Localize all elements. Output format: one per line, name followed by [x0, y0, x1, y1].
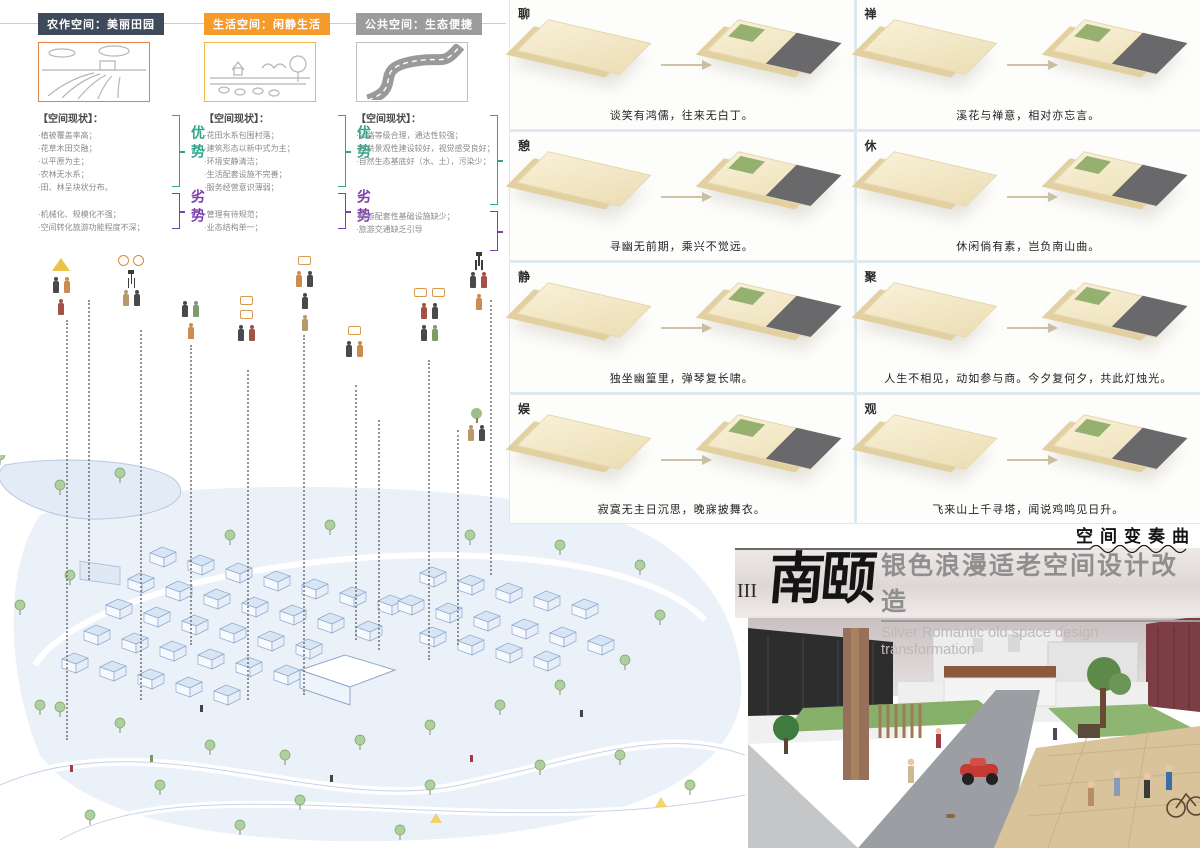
list-item: ·空间转化旅游功能程度不深；: [38, 221, 170, 234]
person-figure-icon: [432, 307, 438, 319]
photographer-icon: [470, 252, 487, 310]
winding-road-sketch: [356, 42, 468, 102]
disadvantage-list: ·机械化、规模化不强； ·空间转化旅游功能程度不深；: [38, 208, 170, 234]
disadvantage-list: ·管理有待规范； ·业态结构单一；: [204, 208, 336, 234]
building-slab: [863, 151, 998, 207]
before-after-models: [857, 395, 1200, 489]
before-after-models: [857, 0, 1200, 94]
village-sketch-drawing: [206, 44, 314, 100]
transform-cell-chat: 聊 谈笑有鸿儒，往来无白丁。: [510, 0, 854, 129]
camera-tripod-icon: [126, 270, 136, 284]
person-figure-icon: [134, 294, 140, 306]
building-slab: [863, 19, 998, 75]
model-after: [713, 411, 841, 489]
project-titles: 银色浪漫适老空间设计改造 Silver Romantic old space d…: [881, 546, 1200, 658]
tent-shape: [52, 258, 70, 271]
building-slab: [516, 282, 651, 338]
building-slab: [1053, 151, 1188, 207]
picnic-food-icon: [238, 296, 255, 341]
badge-public-space: 公共空间：生态便捷: [356, 13, 482, 35]
analysis-column-farm: 农作空间：美丽田园 【空间现状】： ·植被覆盖率高； ·花草木田交融； ·以平原…: [38, 13, 198, 234]
building-slab: [516, 414, 651, 470]
cell-caption: 休闲倘有素，岂负南山曲。: [857, 238, 1200, 254]
person-figure-icon: [238, 329, 244, 341]
badge-farm-space: 农作空间：美丽田园: [38, 13, 164, 35]
person-figure-icon: [357, 345, 363, 357]
model-after: [1059, 411, 1187, 489]
person-figure-icon: [307, 275, 313, 287]
connector-dotted-line: [66, 320, 68, 740]
advantage-bracket: [338, 115, 346, 187]
list-item: ·公共景观性建设较好，视觉感受良好；: [356, 142, 488, 155]
model-before: [523, 279, 651, 357]
building-slab: [706, 282, 841, 338]
food-shape: [414, 288, 427, 297]
building-slab: [706, 414, 841, 470]
person-figure-icon: [470, 276, 476, 288]
arrow-right-icon: [1007, 64, 1049, 66]
bicycle-icon: [118, 254, 144, 306]
list-item: ·环境安静清洁；: [204, 155, 336, 168]
tent-icon: [52, 258, 70, 315]
connector-dotted-line: [247, 370, 249, 700]
list-item: ·自然生态基底好（水、土），污染少；: [356, 155, 488, 168]
model-before: [523, 411, 651, 489]
model-after: [1059, 148, 1187, 226]
bicycle-shape: [118, 254, 144, 265]
badge-life-space: 生活空间：闲静生活: [204, 13, 330, 35]
person-figure-icon: [123, 294, 129, 306]
potted-tree-icon: [468, 408, 485, 441]
food-shape: [240, 310, 253, 319]
farm-field-sketch: [38, 42, 150, 102]
transform-cell-leisure: 休 休闲倘有素，岂负南山曲。: [857, 132, 1200, 261]
person-figure-icon: [249, 329, 255, 341]
list-item: ·管理有待规范；: [204, 208, 336, 221]
person-figure-icon: [468, 429, 474, 441]
person-figure-icon: [182, 305, 188, 317]
winding-road-sketch-drawing: [358, 44, 466, 100]
building-slab: [706, 151, 841, 207]
person-figure-icon: [53, 281, 59, 293]
walking-elder-icon: [346, 326, 363, 357]
building-slab: [706, 19, 841, 75]
person-figure-icon: [302, 319, 308, 331]
arrow-right-icon: [1007, 459, 1049, 461]
before-after-models: [857, 132, 1200, 226]
cell-caption: 人生不相见，动如参与商。今夕复何夕，共此灯烛光。: [857, 370, 1200, 386]
person-figure-icon: [421, 307, 427, 319]
disadvantage-bracket: [490, 211, 498, 251]
analysis-column-public: 公共空间：生态便捷 【空间现状】： ·公路等级合理，通达性较强； ·公共景观性建…: [356, 13, 516, 236]
connector-dotted-line: [88, 300, 90, 580]
cell-caption: 独坐幽篁里，弹琴复长啸。: [510, 370, 854, 386]
advantage-list: ·花田水系包围村落； ·建筑形态以新中式为主； ·环境安静清洁； ·生活配套设施…: [204, 129, 336, 194]
camera-tripod-icon: [474, 252, 484, 266]
model-after: [1059, 279, 1187, 357]
project-logo: 南颐: [765, 534, 876, 615]
model-before: [523, 16, 651, 94]
farm-field-sketch-drawing: [40, 44, 148, 100]
food-shape: [432, 288, 445, 297]
panel-number: III: [737, 580, 757, 603]
tree-shape: [471, 408, 482, 419]
arrow-right-icon: [661, 64, 703, 66]
project-title-en: Silver Romantic old space design transfo…: [881, 624, 1194, 658]
arrow-right-icon: [661, 327, 703, 329]
transformation-grid: 聊 谈笑有鸿儒，往来无白丁。 禅 溪花与禅意，相对亦忘言。 憩: [509, 0, 1200, 524]
person-figure-icon: [302, 297, 308, 309]
building-slab: [863, 414, 998, 470]
model-before: [523, 148, 651, 226]
building-slab: [1053, 414, 1188, 470]
person-figure-icon: [346, 345, 352, 357]
transform-cell-rest: 憩 寻幽无前期，乘兴不觉远。: [510, 132, 854, 261]
disadvantage-list: ·旅游配套性基础设施缺少； ·旅游交通缺乏引导: [356, 210, 488, 236]
person-figure-icon: [476, 298, 482, 310]
cell-caption: 溪花与禅意，相对亦忘言。: [857, 107, 1200, 123]
connector-dotted-line: [190, 345, 192, 645]
transform-cell-gather: 聚 人生不相见，动如参与商。今夕复何夕，共此灯烛光。: [857, 263, 1200, 392]
person-figure-icon: [481, 276, 487, 288]
transform-cell-entertain: 娱 寂寞无主日沉思，晚寐披舞衣。: [510, 395, 854, 524]
arrow-right-icon: [1007, 196, 1049, 198]
person-figure-icon: [64, 281, 70, 293]
person-figure-icon: [188, 327, 194, 339]
transform-cell-zen: 禅 溪花与禅意，相对亦忘言。: [857, 0, 1200, 129]
elderly-couple-icon: [182, 300, 199, 339]
list-item: ·建筑形态以新中式为主；: [204, 142, 336, 155]
activity-shape: [298, 256, 311, 265]
before-after-models: [510, 263, 854, 357]
disadvantage-bracket: [338, 193, 346, 229]
building-slab: [516, 151, 651, 207]
connector-dotted-line: [140, 330, 142, 700]
cheering-elder-icon: [296, 256, 313, 331]
list-item: ·生活配套设施不完善；: [204, 168, 336, 181]
analysis-column-life: 生活空间：闲静生活 【空间现状】： ·花田水系包围村落； ·建筑形态以新中式为主…: [204, 13, 364, 234]
advantage-bracket: [172, 115, 180, 187]
person-figure-icon: [421, 329, 427, 341]
person-figure-icon: [193, 305, 199, 317]
model-before: [869, 411, 997, 489]
before-after-models: [510, 0, 854, 94]
list-item: ·业态结构单一；: [204, 221, 336, 234]
village-sketch: [204, 42, 316, 102]
before-after-models: [857, 263, 1200, 357]
advantage-label: 优势: [186, 125, 206, 163]
model-before: [869, 279, 997, 357]
arrow-right-icon: [1007, 327, 1049, 329]
list-item: ·花草木田交融；: [38, 142, 170, 155]
list-item: ·植被覆盖率高；: [38, 129, 170, 142]
activity-shape: [348, 326, 361, 335]
connector-dotted-line: [355, 385, 357, 640]
person-figure-icon: [58, 303, 64, 315]
model-after: [1059, 16, 1187, 94]
cell-caption: 寂寞无主日沉思，晚寐披舞衣。: [510, 501, 854, 517]
advantage-bracket: [490, 115, 498, 205]
list-item: ·机械化、规模化不强；: [38, 208, 170, 221]
connector-dotted-line: [428, 360, 430, 660]
cell-caption: 寻幽无前期，乘兴不觉远。: [510, 238, 854, 254]
cell-caption: 飞来山上千寻塔，闻说鸡鸣见日升。: [857, 501, 1200, 517]
connector-dotted-line: [378, 420, 380, 650]
picnic-food-icon: [414, 288, 445, 341]
before-after-models: [510, 395, 854, 489]
project-title-cn: 银色浪漫适老空间设计改造: [881, 546, 1200, 622]
model-before: [869, 16, 997, 94]
list-item: ·以平原为主；: [38, 155, 170, 168]
transform-cell-view: 观 飞来山上千寻塔，闻说鸡鸣见日升。: [857, 395, 1200, 524]
person-figure-icon: [432, 329, 438, 341]
list-item: ·旅游交通缺乏引导: [356, 223, 488, 236]
model-after: [713, 279, 841, 357]
arrow-right-icon: [661, 459, 703, 461]
model-before: [869, 148, 997, 226]
title-block: 空间变奏曲 III 南颐 银色浪漫适老空间设计改造 Silver Romanti…: [735, 522, 1200, 618]
before-after-models: [510, 132, 854, 226]
model-after: [713, 16, 841, 94]
list-item: ·农林无水系；: [38, 168, 170, 181]
advantage-list: ·公路等级合理，通达性较强； ·公共景观性建设较好，视觉感受良好； ·自然生态基…: [356, 129, 488, 168]
model-after: [713, 148, 841, 226]
presentation-board: 农作空间：美丽田园 【空间现状】： ·植被覆盖率高； ·花草木田交融； ·以平原…: [0, 0, 1200, 848]
list-item: ·公路等级合理，通达性较强；: [356, 129, 488, 142]
disadvantage-bracket: [172, 193, 180, 229]
building-slab: [1053, 282, 1188, 338]
person-figure-icon: [479, 429, 485, 441]
cell-caption: 谈笑有鸿儒，往来无白丁。: [510, 107, 854, 123]
connector-dotted-line: [303, 335, 305, 695]
connector-dotted-line: [457, 430, 459, 645]
connector-dotted-line: [490, 300, 492, 575]
list-item: ·田、林呈块状分布。: [38, 181, 170, 194]
person-figure-icon: [296, 275, 302, 287]
transform-cell-quiet: 静 独坐幽篁里，弹琴复长啸。: [510, 263, 854, 392]
advantage-list: ·植被覆盖率高； ·花草木田交融； ·以平原为主； ·农林无水系； ·田、林呈块…: [38, 129, 170, 194]
building-slab: [516, 19, 651, 75]
food-shape: [240, 296, 253, 305]
list-item: ·服务经营意识薄弱；: [204, 181, 336, 194]
list-item: ·旅游配套性基础设施缺少；: [356, 210, 488, 223]
building-slab: [863, 282, 998, 338]
building-slab: [1053, 19, 1188, 75]
disadvantage-label: 劣势: [186, 189, 206, 227]
arrow-right-icon: [661, 196, 703, 198]
list-item: ·花田水系包围村落；: [204, 129, 336, 142]
